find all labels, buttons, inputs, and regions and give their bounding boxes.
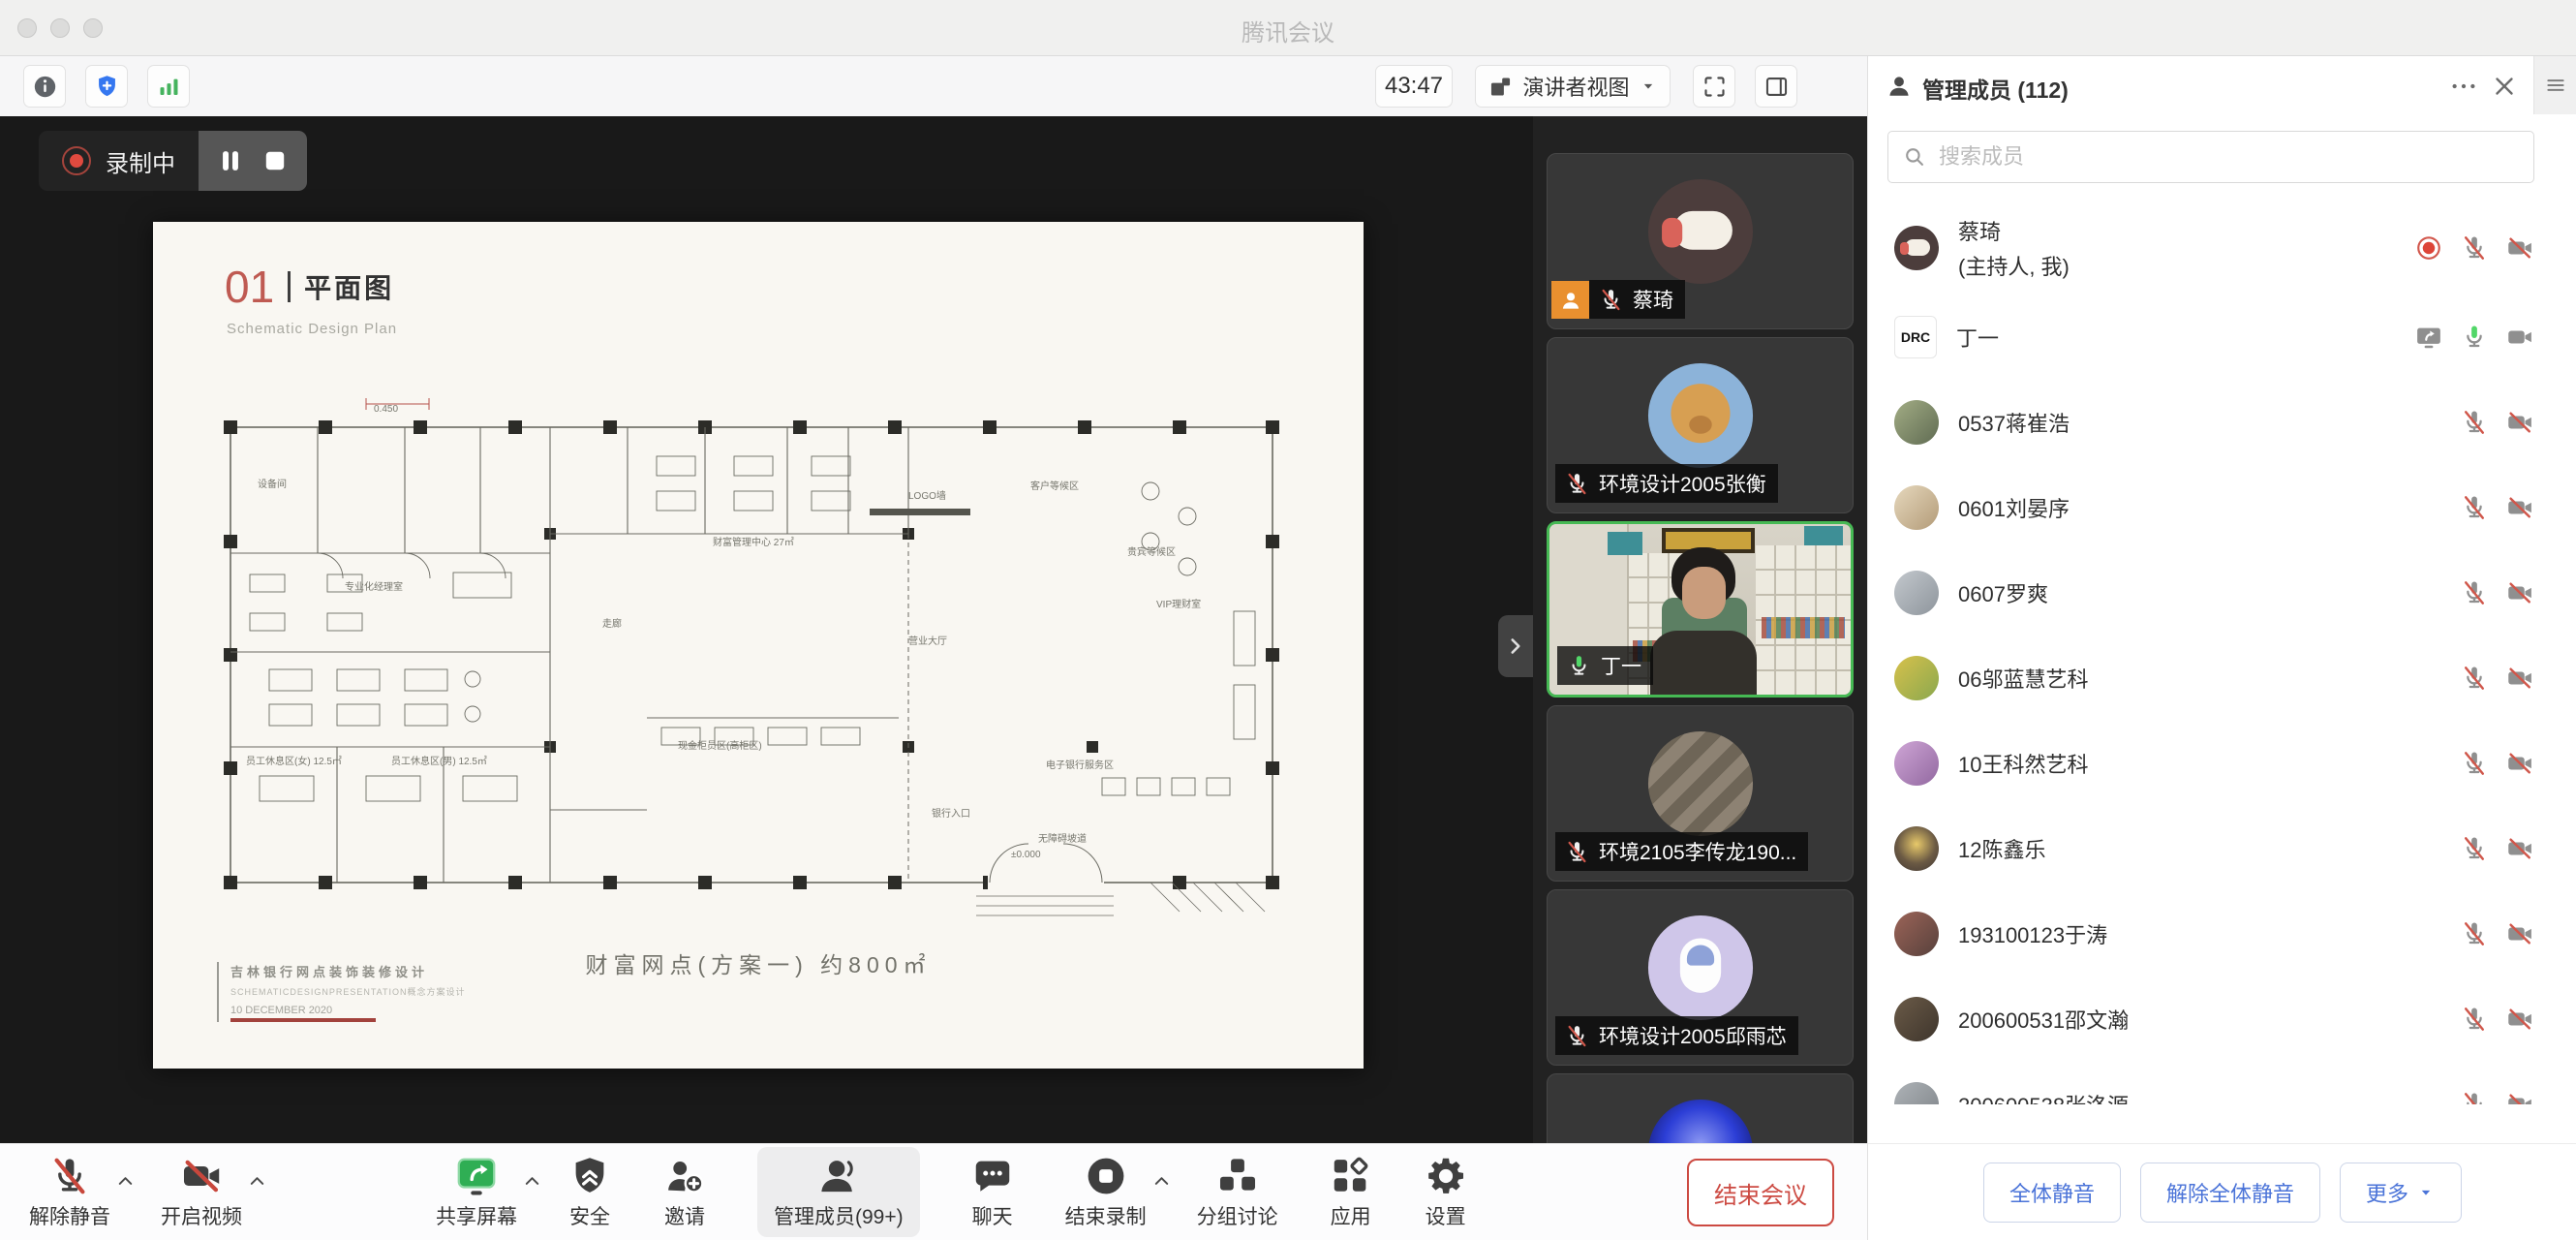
plan-room-label: 营业大厅 <box>908 635 947 647</box>
galaxy-avatar <box>1647 1100 1752 1143</box>
lion-avatar <box>1647 363 1752 468</box>
member-status-icons <box>2460 834 2534 863</box>
cam-muted-icon[interactable] <box>2505 493 2534 522</box>
member-status-icons <box>2460 408 2534 437</box>
apps-icon <box>1329 1154 1373 1198</box>
cam-muted-icon[interactable] <box>2505 578 2534 607</box>
video-tile[interactable]: 环境设计2005张衡 <box>1547 337 1854 513</box>
more-options-icon[interactable] <box>2449 72 2478 101</box>
member-name: 10王科然艺科 <box>1958 748 2460 779</box>
mic-muted-icon[interactable] <box>2460 1090 2489 1104</box>
member-info: 200600538张洛源 <box>1958 1089 2460 1104</box>
toolbar-items: 解除静音开启视频共享屏幕安全邀请管理成员(99+)聊天结束录制分组讨论应用设置 <box>29 1147 1518 1237</box>
chevron-up-icon[interactable] <box>246 1170 268 1193</box>
filmstrip-collapse-handle[interactable] <box>1498 615 1533 677</box>
member-info: 0537蒋崔浩 <box>1958 407 2460 438</box>
member-info: 200600531邵文瀚 <box>1958 1004 2460 1035</box>
member-name: 12陈鑫乐 <box>1958 833 2460 864</box>
credits-line3: 10 DECEMBER 2020 <box>230 1005 466 1016</box>
panel-title: 管理成员 (112) <box>1922 72 2069 105</box>
mic-muted-icon[interactable] <box>2460 493 2489 522</box>
toolbar-item-label: 邀请 <box>664 1201 705 1230</box>
member-status-icons <box>2460 493 2534 522</box>
mute-all-button[interactable]: 全体静音 <box>1983 1162 2121 1223</box>
cam-muted-icon[interactable] <box>2505 834 2534 863</box>
mic-muted-icon[interactable] <box>2460 578 2489 607</box>
member-name: 0537蒋崔浩 <box>1958 407 2460 438</box>
caret-down-icon <box>1639 77 1658 96</box>
unmute-all-button[interactable]: 解除全体静音 <box>2140 1162 2320 1223</box>
shield-plus-icon <box>94 74 120 100</box>
tile-participant-name: 丁一 <box>1601 651 1641 680</box>
member-row[interactable]: DRC丁一 <box>1868 294 2576 380</box>
member-status-icons <box>2460 578 2534 607</box>
mic-active-icon[interactable] <box>2460 323 2489 352</box>
avatar <box>1678 393 1723 438</box>
cam-muted-icon[interactable] <box>2505 919 2534 948</box>
meeting-topbar: 43:47 演讲者视图 <box>0 56 1867 116</box>
section-number: 01 <box>225 261 274 313</box>
member-avatar: DRC <box>1894 316 1937 358</box>
cam-muted-icon[interactable] <box>2505 1005 2534 1034</box>
member-status-icons <box>2460 664 2534 693</box>
member-info: 蔡琦(主持人, 我) <box>1958 215 2414 281</box>
plan-room-label: VIP理财室 <box>1156 598 1201 610</box>
plan-room-label: 电子银行服务区 <box>1046 759 1114 771</box>
member-row[interactable]: 200600538张洛源 <box>1868 1062 2576 1104</box>
member-avatar <box>1894 1082 1939 1104</box>
pause-recording-button[interactable] <box>214 144 247 177</box>
member-name: 06邬蓝慧艺科 <box>1958 663 2460 694</box>
video-tile[interactable]: 环境设计2005邱雨芯 <box>1547 889 1854 1066</box>
member-avatar <box>1894 226 1939 270</box>
dora-avatar <box>1647 915 1752 1020</box>
toolbar-item-label: 共享屏幕 <box>436 1201 517 1230</box>
mic-muted-icon[interactable] <box>2460 1005 2489 1034</box>
member-row[interactable]: 200600531邵文瀚 <box>1868 976 2576 1062</box>
chevron-up-icon[interactable] <box>1150 1170 1173 1193</box>
slide-section-header: 01 平面图 <box>225 261 394 313</box>
chevron-right-icon <box>1503 634 1528 659</box>
plan-room-label: 员工休息区(男) 12.5㎡ <box>391 755 487 767</box>
settings-icon <box>1424 1154 1468 1198</box>
member-name: 200600531邵文瀚 <box>1958 1004 2460 1035</box>
more-button[interactable]: 更多 <box>2340 1162 2462 1223</box>
section-divider <box>288 271 291 302</box>
panel-header: 管理成员 (112) <box>1868 56 2576 116</box>
member-avatar <box>1894 571 1939 615</box>
member-row[interactable]: 193100123于涛 <box>1868 891 2576 976</box>
person-icon <box>1558 288 1583 313</box>
toolbar-item-participants[interactable]: 管理成员(99+) <box>757 1147 920 1237</box>
toolbar-item-mic-muted-lg[interactable]: 解除静音 <box>29 1154 110 1230</box>
member-info: 12陈鑫乐 <box>1958 833 2460 864</box>
view-mode-label: 演讲者视图 <box>1522 71 1629 102</box>
member-status-icons <box>2460 919 2534 948</box>
plan-room-label: 设备间 <box>258 478 287 490</box>
avatar <box>1678 209 1723 254</box>
toolbar-item-stop-record[interactable]: 结束录制 <box>1065 1154 1147 1230</box>
bottom-toolbar: 解除静音开启视频共享屏幕安全邀请管理成员(99+)聊天结束录制分组讨论应用设置 … <box>0 1143 1867 1240</box>
member-row[interactable]: 0607罗爽 <box>1868 550 2576 635</box>
manage-members-panel: 管理成员 (112) 蔡琦(主持人, 我) DRC丁一 0537蒋崔浩 0601… <box>1867 56 2576 1240</box>
toolbar-item-label: 分组讨论 <box>1197 1201 1278 1230</box>
member-avatar <box>1894 400 1939 445</box>
recording-bar: 录制中 <box>39 131 307 191</box>
member-search-box[interactable] <box>1887 131 2534 183</box>
mic-muted-icon[interactable] <box>2460 664 2489 693</box>
member-row[interactable]: 10王科然艺科 <box>1868 721 2576 806</box>
end-meeting-button[interactable]: 结束会议 <box>1687 1159 1834 1226</box>
close-panel-icon[interactable] <box>2490 72 2519 101</box>
recording-icon <box>2414 233 2443 263</box>
member-row[interactable]: 0601刘晏序 <box>1868 465 2576 550</box>
credits-underline <box>230 1018 376 1022</box>
participants-icon <box>816 1154 861 1198</box>
tile-name-label: 丁一 <box>1557 646 1653 685</box>
member-name: 0601刘晏序 <box>1958 492 2460 523</box>
member-name: 200600538张洛源 <box>1958 1089 2460 1104</box>
tile-name-label: 环境设计2005邱雨芯 <box>1555 1016 1798 1055</box>
shared-screen-stage: 录制中 设备间专业化经理室财富管理中心 27㎡LOGO墙客户等候区贵宾等候区VI… <box>0 116 1533 1143</box>
mic-active-icon <box>1566 653 1592 679</box>
member-avatar <box>1894 741 1939 786</box>
fullscreen-button[interactable] <box>1693 65 1735 108</box>
info-icon <box>32 74 58 100</box>
recording-label: 录制中 <box>106 144 175 178</box>
plan-room-label: 财富管理中心 27㎡ <box>713 536 794 548</box>
meeting-protect-button[interactable] <box>85 65 128 108</box>
invite-icon <box>662 1154 707 1198</box>
member-name: 丁一 <box>1956 322 2414 353</box>
member-info: 丁一 <box>1956 322 2414 353</box>
member-role: (主持人, 我) <box>1958 250 2414 281</box>
member-info: 06邬蓝慧艺科 <box>1958 663 2460 694</box>
member-avatar <box>1894 826 1939 871</box>
mic-muted-icon <box>1564 1023 1590 1049</box>
member-status-icons <box>2460 749 2534 778</box>
toolbar-item-invite[interactable]: 邀请 <box>662 1154 707 1230</box>
members-icon <box>1886 73 1913 100</box>
plan-room-label: 员工休息区(女) 12.5㎡ <box>246 755 342 767</box>
bridge-avatar <box>1647 731 1752 836</box>
video-tile[interactable]: 蔡琦 <box>1547 153 1854 329</box>
member-status-icons <box>2414 323 2534 352</box>
avatar <box>1678 945 1723 990</box>
plan-room-label: 现金柜员区(高柜区) <box>678 739 762 752</box>
view-mode-selector[interactable]: 演讲者视图 <box>1475 65 1671 108</box>
hamburger-icon <box>2543 73 2568 98</box>
toolbar-item-apps[interactable]: 应用 <box>1329 1154 1373 1230</box>
member-row[interactable]: 06邬蓝慧艺科 <box>1868 635 2576 721</box>
cam-muted-lg-icon <box>179 1154 224 1198</box>
member-status-icons <box>2460 1005 2534 1034</box>
section-title: 平面图 <box>304 267 394 306</box>
stop-recording-button[interactable] <box>259 144 291 177</box>
member-name: 193100123于涛 <box>1958 918 2460 949</box>
network-stats-icon <box>156 74 182 100</box>
chevron-up-icon[interactable] <box>521 1170 543 1193</box>
cam-muted-icon[interactable] <box>2505 749 2534 778</box>
toolbar-item-label: 设置 <box>1426 1201 1466 1230</box>
member-info: 10王科然艺科 <box>1958 748 2460 779</box>
member-list: 蔡琦(主持人, 我) DRC丁一 0537蒋崔浩 0601刘晏序 0607罗爽 … <box>1868 201 2576 1104</box>
member-info: 0607罗爽 <box>1958 577 2460 608</box>
cam-muted-icon[interactable] <box>2505 233 2534 263</box>
tile-participant-name: 蔡琦 <box>1633 285 1673 314</box>
plan-room-label: 走廊 <box>602 617 622 630</box>
recording-status: 录制中 <box>39 131 199 191</box>
tile-name-label: 蔡琦 <box>1589 280 1685 319</box>
toolbar-item-label: 应用 <box>1331 1201 1371 1230</box>
plan-room-label: 银行入口 <box>932 807 970 820</box>
meeting-timer: 43:47 <box>1375 65 1453 108</box>
plan-room-label: ±0.000 <box>1011 850 1041 860</box>
tile-participant-name: 环境设计2005邱雨芯 <box>1599 1021 1787 1050</box>
mic-muted-icon[interactable] <box>2460 834 2489 863</box>
member-info: 0601刘晏序 <box>1958 492 2460 523</box>
toolbar-item-share-screen[interactable]: 共享屏幕 <box>436 1154 517 1230</box>
member-name: 0607罗爽 <box>1958 577 2460 608</box>
member-row[interactable]: 0537蒋崔浩 <box>1868 380 2576 465</box>
tile-participant-name: 环境2105李传龙190... <box>1599 837 1796 866</box>
mic-muted-icon[interactable] <box>2460 233 2489 263</box>
member-avatar <box>1894 997 1939 1041</box>
search-icon <box>1902 144 1927 170</box>
plan-room-label: 客户等候区 <box>1030 480 1079 492</box>
mic-muted-lg-icon <box>47 1154 92 1198</box>
cam-on-icon[interactable] <box>2505 323 2534 352</box>
speaker-view-icon <box>1487 74 1514 100</box>
toolbar-item-label: 管理成员(99+) <box>774 1201 904 1230</box>
member-name: 蔡琦 <box>1958 215 2414 246</box>
shared-slide: 设备间专业化经理室财富管理中心 27㎡LOGO墙客户等候区贵宾等候区VIP理财室… <box>153 222 1364 1069</box>
credits-line1: 吉林银行网点装饰装修设计 <box>230 962 466 980</box>
window-title: 腾讯会议 <box>0 14 2576 47</box>
search-input[interactable] <box>1937 143 2520 170</box>
member-info: 193100123于涛 <box>1958 918 2460 949</box>
fullscreen-icon <box>1702 74 1728 100</box>
section-subtitle: Schematic Design Plan <box>227 321 397 337</box>
cam-muted-icon[interactable] <box>2505 408 2534 437</box>
plan-room-label: LOGO墙 <box>908 489 946 502</box>
member-row[interactable]: 蔡琦(主持人, 我) <box>1868 201 2576 294</box>
chevron-up-icon[interactable] <box>114 1170 137 1193</box>
credits-line2: SCHEMATICDESIGNPRESENTATION概念方案设计 <box>230 985 466 998</box>
security-icon <box>567 1154 612 1198</box>
member-status-icons <box>2460 1090 2534 1104</box>
plan-room-label: 0.450 <box>374 404 398 415</box>
video-filmstrip: 蔡琦 环境设计2005张衡 丁一 环境2105李传龙190... 环境设计200… <box>1533 116 1867 1143</box>
recording-dot-icon <box>62 146 91 175</box>
video-tile[interactable]: 环境2105李传龙190... <box>1547 705 1854 882</box>
caret-down-icon <box>2416 1183 2436 1202</box>
toolbar-item-label: 安全 <box>569 1201 610 1230</box>
screen-share-icon <box>2414 323 2443 352</box>
toolbar-item-cam-muted-lg[interactable]: 开启视频 <box>161 1154 242 1230</box>
toolbar-item-settings[interactable]: 设置 <box>1424 1154 1468 1230</box>
toolbar-item-label: 解除静音 <box>29 1201 110 1230</box>
video-tile[interactable] <box>1547 1073 1854 1143</box>
member-avatar <box>1894 656 1939 700</box>
toolbar-item-security[interactable]: 安全 <box>567 1154 612 1230</box>
mic-muted-icon[interactable] <box>2460 919 2489 948</box>
network-stats-button[interactable] <box>147 65 190 108</box>
cam-muted-icon[interactable] <box>2505 1090 2534 1104</box>
cam-muted-icon[interactable] <box>2505 664 2534 693</box>
member-avatar <box>1894 485 1939 530</box>
plan-room-label: 贵宾等候区 <box>1127 545 1176 558</box>
floor-plan-drawing: 设备间专业化经理室财富管理中心 27㎡LOGO墙客户等候区贵宾等候区VIP理财室… <box>153 222 1364 1069</box>
panel-menu-button[interactable] <box>2533 56 2576 114</box>
plan-room-label: 无障碍坡道 <box>1038 832 1087 845</box>
slide-credits: 吉林银行网点装饰装修设计 SCHEMATICDESIGNPRESENTATION… <box>217 962 466 1022</box>
mic-muted-icon[interactable] <box>2460 749 2489 778</box>
member-status-icons <box>2414 233 2534 263</box>
member-row[interactable]: 12陈鑫乐 <box>1868 806 2576 891</box>
mic-muted-icon <box>1564 471 1590 497</box>
chat-icon <box>970 1154 1015 1198</box>
stop-record-icon <box>1084 1154 1128 1198</box>
mic-muted-icon <box>1564 839 1590 865</box>
share-screen-icon <box>454 1154 499 1198</box>
video-tile[interactable]: 丁一 <box>1547 521 1854 697</box>
tile-name-label: 环境2105李传龙190... <box>1555 832 1808 871</box>
mic-muted-icon <box>1598 287 1624 313</box>
toolbar-item-label: 结束录制 <box>1065 1201 1147 1230</box>
host-badge <box>1551 281 1589 319</box>
meeting-info-button[interactable] <box>23 65 66 108</box>
toolbar-item-label: 聊天 <box>972 1201 1013 1230</box>
breakout-icon <box>1215 1154 1260 1198</box>
layout-button[interactable] <box>1755 65 1797 108</box>
toolbar-item-breakout[interactable]: 分组讨论 <box>1197 1154 1278 1230</box>
sheep-avatar <box>1647 179 1752 284</box>
plan-room-label: 专业化经理室 <box>345 580 403 593</box>
toolbar-item-chat[interactable]: 聊天 <box>970 1154 1015 1230</box>
toolbar-item-label: 开启视频 <box>161 1201 242 1230</box>
layout-right-icon <box>1763 74 1790 100</box>
mic-muted-icon[interactable] <box>2460 408 2489 437</box>
tile-participant-name: 环境设计2005张衡 <box>1599 469 1766 498</box>
tile-name-label: 环境设计2005张衡 <box>1555 464 1778 503</box>
avatar <box>1678 761 1723 806</box>
panel-footer: 全体静音 解除全体静音 更多 <box>1868 1143 2576 1240</box>
avatar <box>1678 1130 1723 1143</box>
recording-controls <box>199 131 307 191</box>
window-titlebar: 腾讯会议 <box>0 0 2576 56</box>
member-avatar <box>1894 912 1939 956</box>
